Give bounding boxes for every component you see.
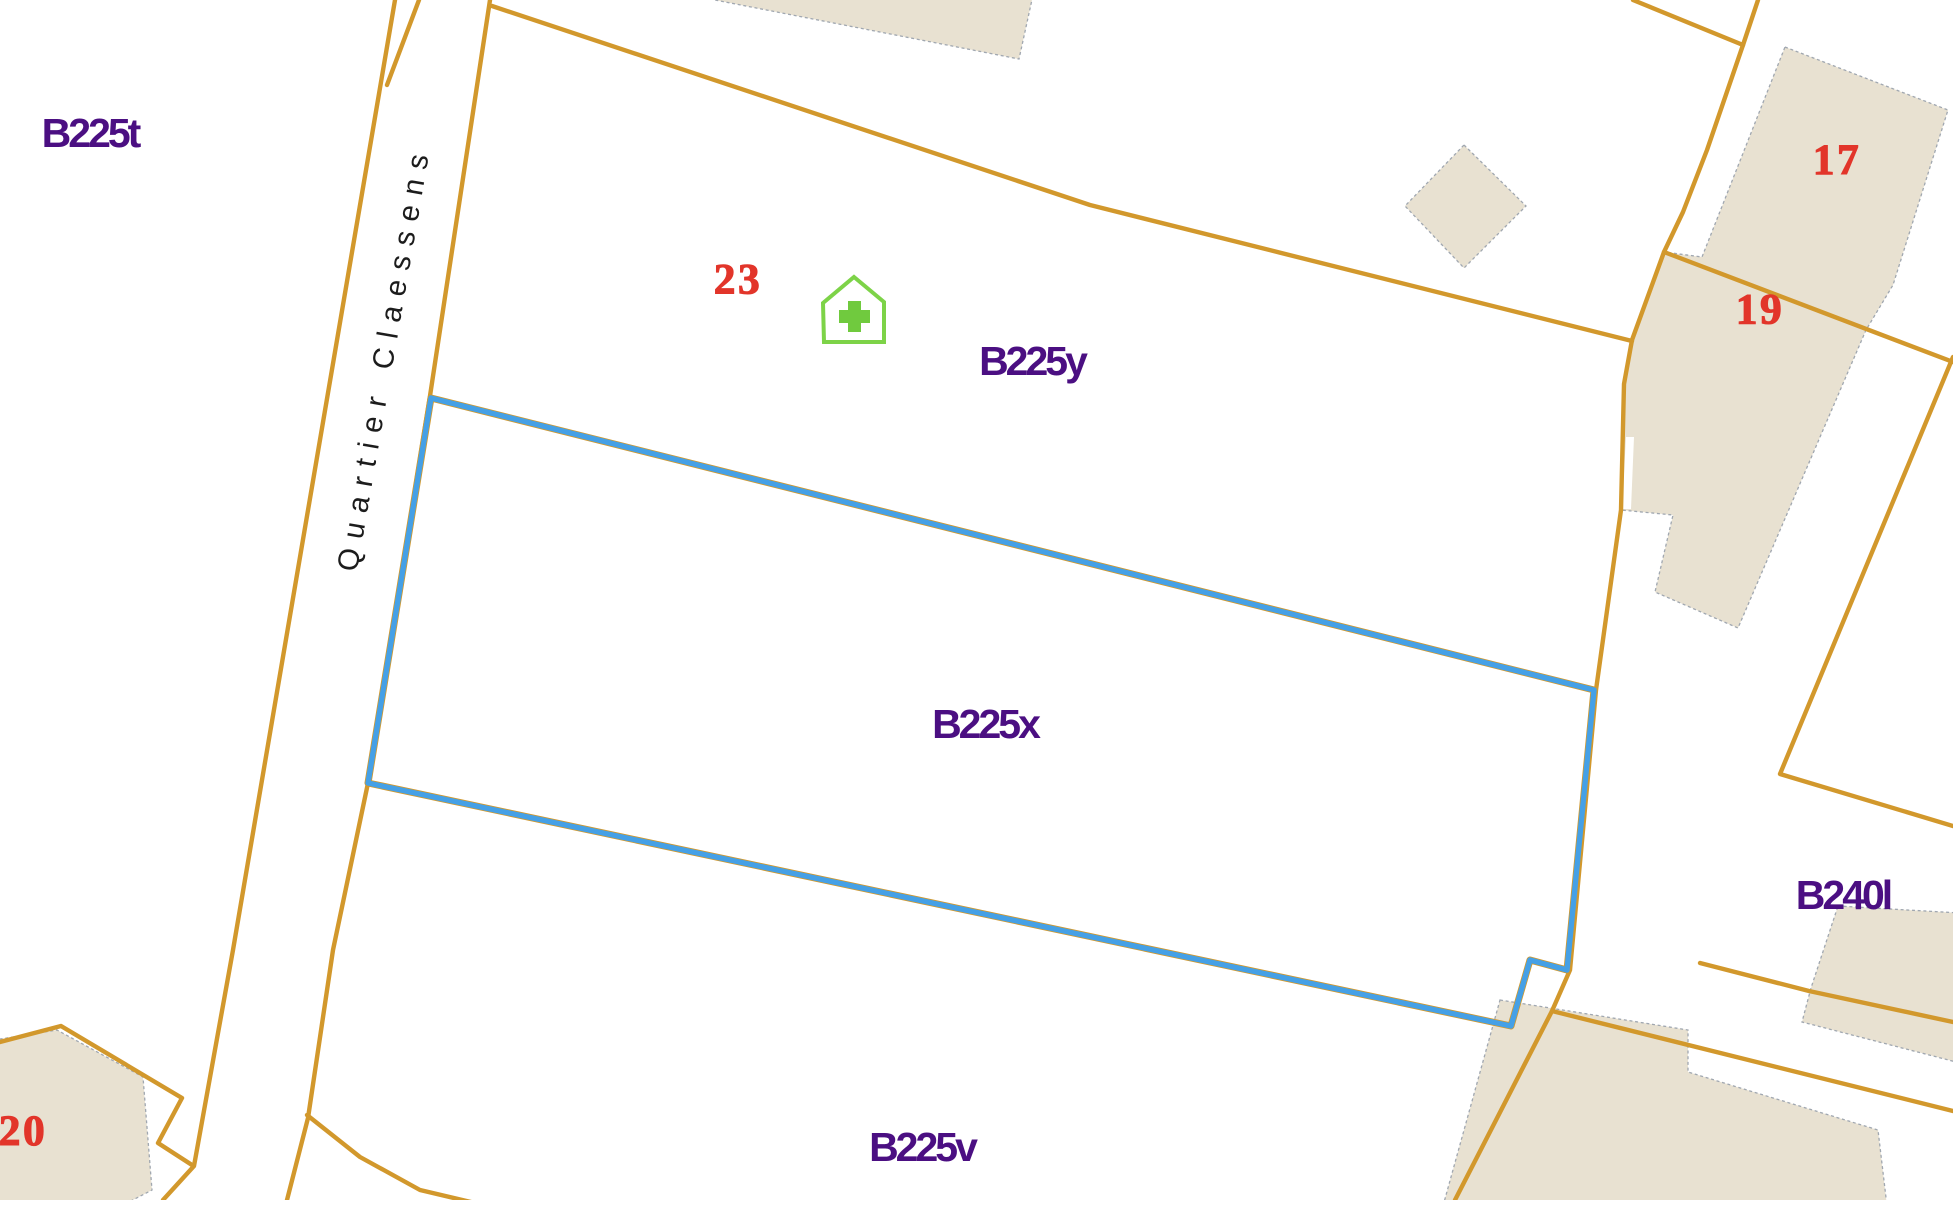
svg-text:B225y: B225y	[979, 338, 1088, 384]
svg-text:23: 23	[714, 256, 763, 304]
svg-text:B240l: B240l	[1796, 872, 1891, 918]
svg-text:B225v: B225v	[869, 1124, 978, 1170]
svg-text:19: 19	[1736, 286, 1785, 334]
svg-text:B225x: B225x	[932, 701, 1041, 747]
svg-text:17: 17	[1813, 136, 1862, 184]
svg-text:20: 20	[0, 1107, 47, 1155]
svg-text:B225t: B225t	[42, 110, 142, 156]
